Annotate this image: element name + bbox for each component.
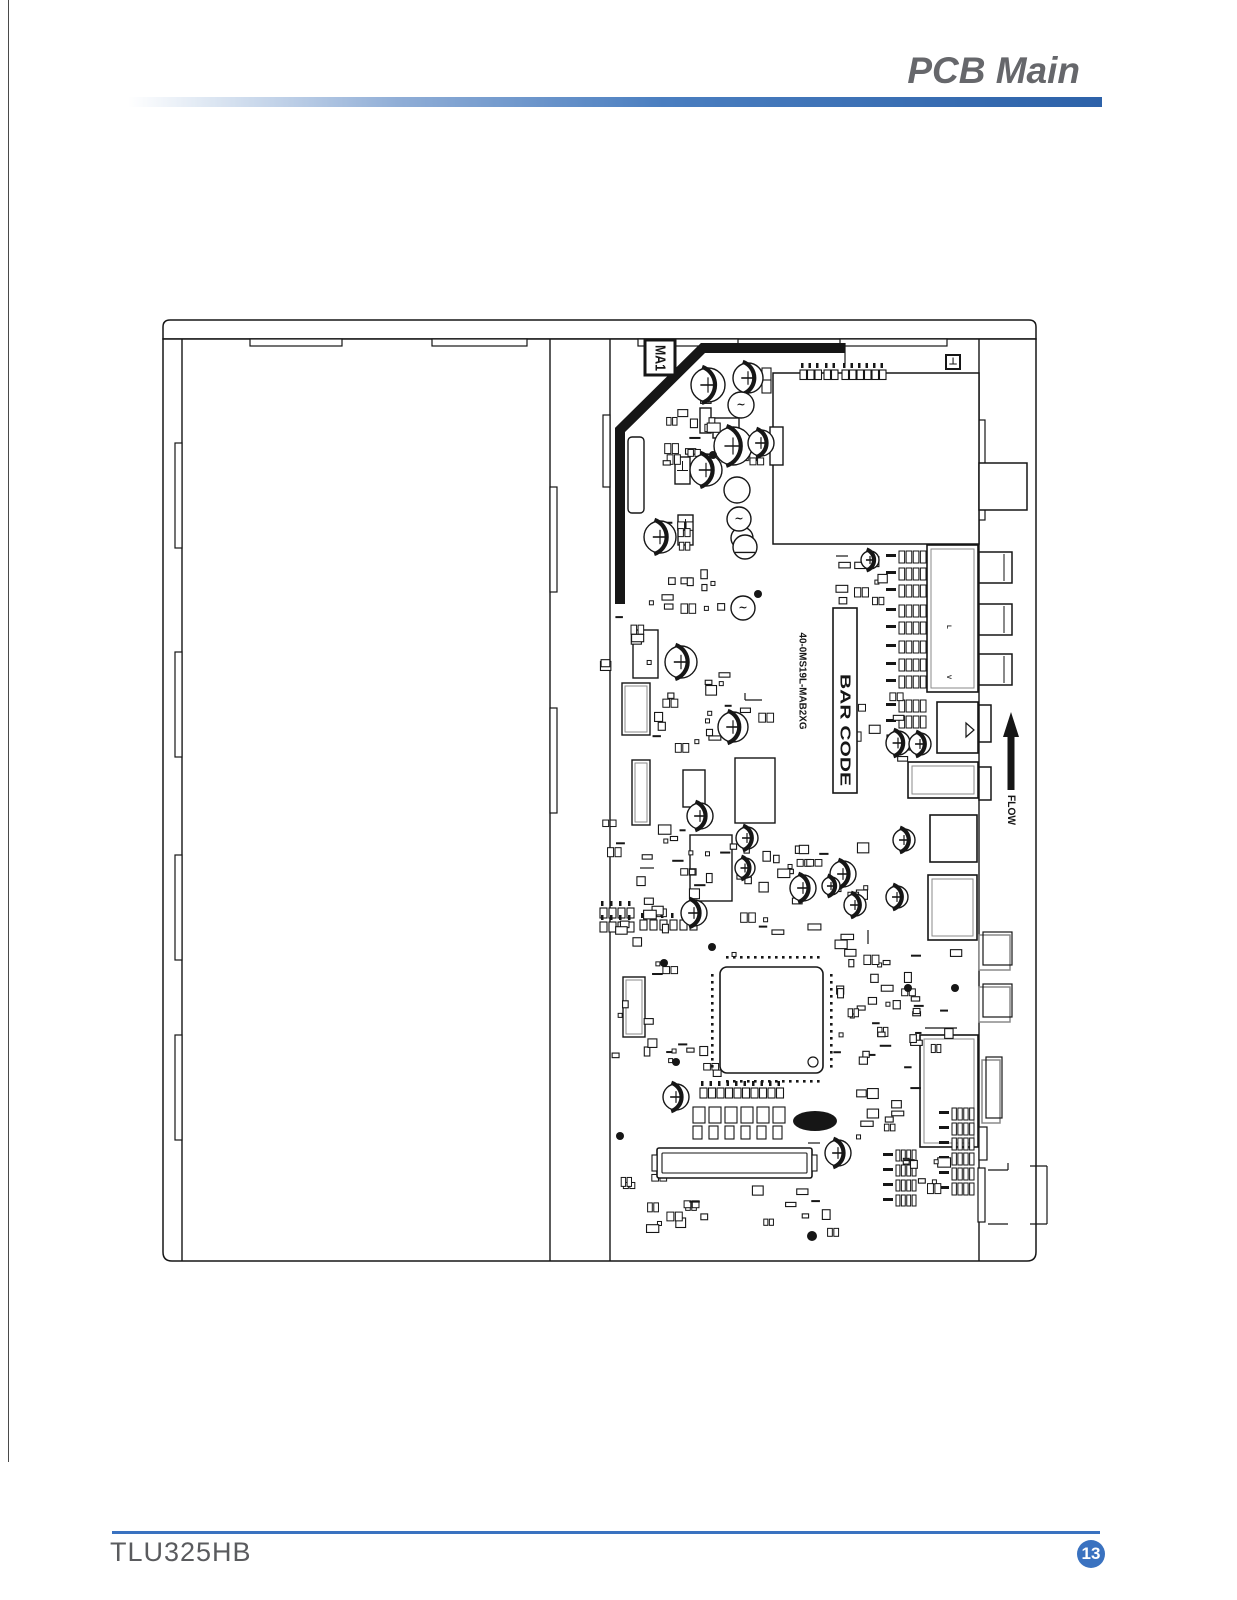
main-ic (711, 956, 833, 1083)
coil-symbol: ~ (736, 398, 745, 411)
manual-page: PCB Main ~~~MA140-0MS19L-MAB2XGBAR CODEY… (0, 0, 1237, 1600)
barcode-label: BAR CODE (837, 674, 854, 786)
jack-l-label: L (945, 625, 951, 629)
coil-symbol: ~ (738, 601, 747, 614)
part-number-label: 40-0MS19L-MAB2XG (797, 633, 808, 730)
coil-symbol: ~ (734, 512, 743, 525)
page-number-badge: 13 (1077, 1540, 1105, 1568)
pcb-diagram: ~~~MA140-0MS19L-MAB2XGBAR CODEY1LV⊥FLOW (0, 0, 1237, 1600)
orientation-marker: ⊥ (948, 357, 957, 368)
model-number: TLU325HB (110, 1537, 252, 1568)
crystal (793, 1111, 837, 1131)
board-ref-label: MA1 (652, 345, 669, 371)
footer-rule (112, 1531, 1100, 1534)
flow-label: FLOW (1005, 795, 1017, 826)
crystal-ref-label: Y1 (618, 559, 624, 567)
jack-v-label: V (945, 675, 951, 679)
lvds-connector (652, 1148, 817, 1178)
